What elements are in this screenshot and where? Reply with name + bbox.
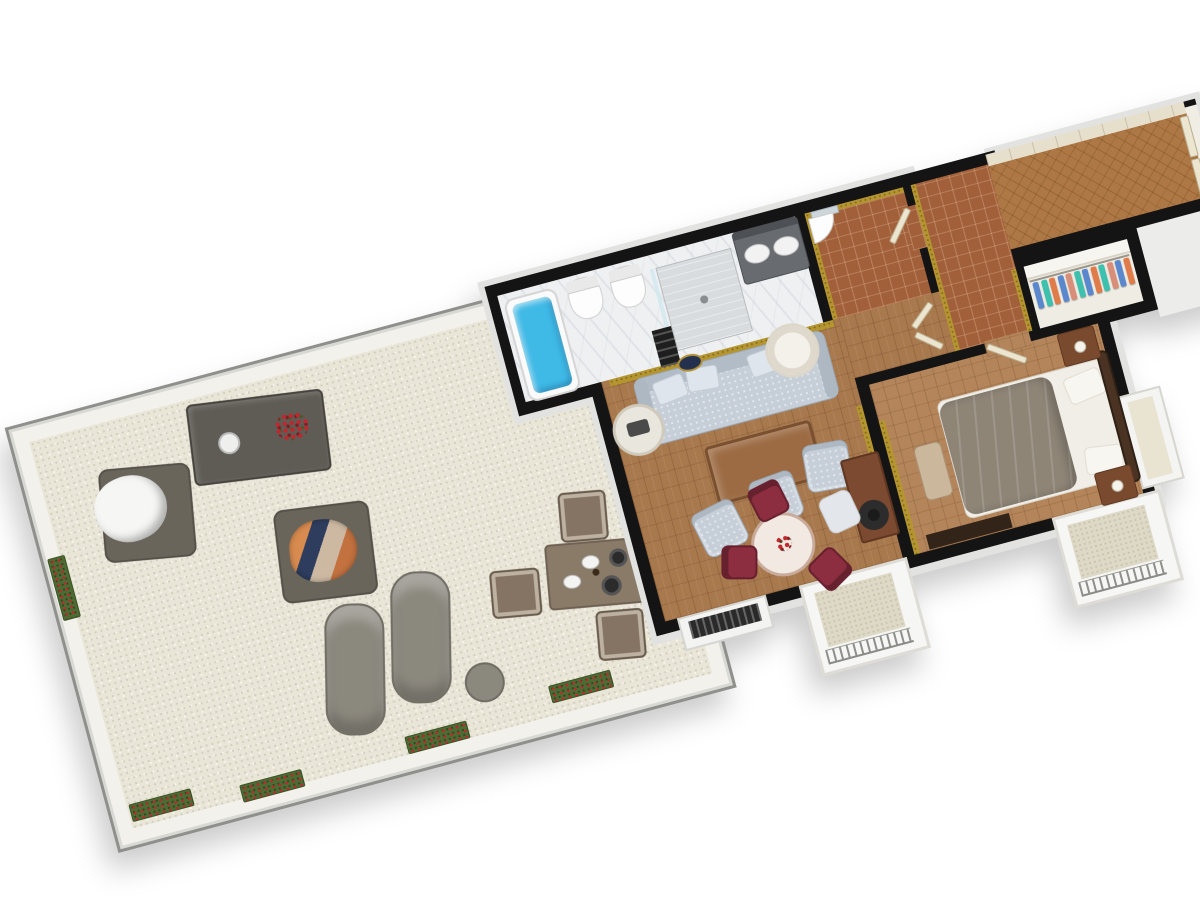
sink: [742, 241, 772, 266]
shower-drain: [699, 295, 709, 305]
clothes-pile: [286, 515, 361, 585]
dark-dish: [609, 548, 629, 568]
bedside-lamp: [1073, 339, 1088, 354]
floor-plan-render: [0, 0, 1200, 912]
sink: [771, 233, 801, 258]
lounge-chair-with-clothes: [272, 500, 379, 605]
outdoor-dining-chair: [595, 607, 647, 661]
sun-lounger: [390, 571, 452, 704]
red-flower-bouquet: [273, 410, 310, 442]
outdoor-dining-chair: [557, 489, 609, 543]
outdoor-dining-chair: [489, 567, 543, 619]
bowl: [217, 431, 242, 456]
tray: [626, 418, 651, 437]
table-flowers: [774, 533, 794, 553]
plate: [563, 574, 582, 590]
plate: [581, 554, 600, 570]
outdoor-coffee-table: [185, 388, 332, 486]
sun-lounger: [324, 603, 386, 736]
rotated-plan: [0, 48, 1200, 912]
red-dining-chair: [721, 545, 757, 579]
dark-dish: [601, 575, 623, 597]
lounge-chair-with-blanket: [98, 462, 198, 564]
bedside-lamp: [1110, 479, 1125, 494]
small-bowl: [592, 568, 600, 576]
